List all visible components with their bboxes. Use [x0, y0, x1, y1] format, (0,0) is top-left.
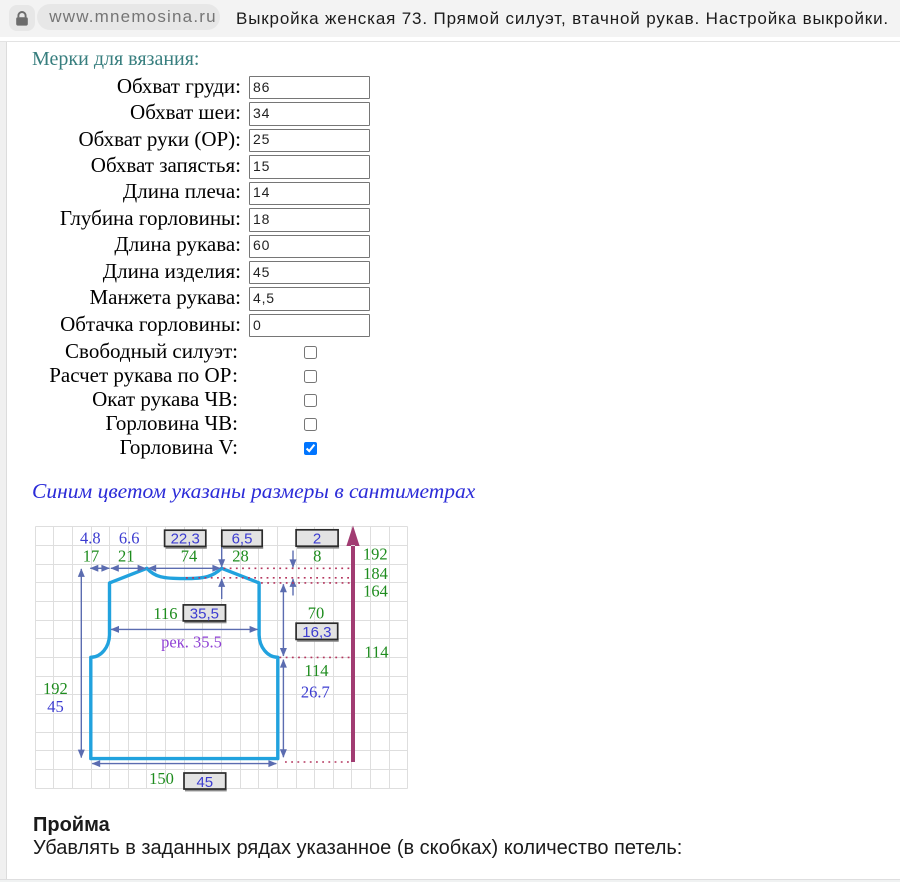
- svg-text:6.6: 6.6: [119, 529, 140, 548]
- svg-text:28: 28: [232, 547, 249, 566]
- svg-text:26.7: 26.7: [301, 683, 330, 702]
- svg-text:21: 21: [118, 547, 135, 566]
- svg-text:192: 192: [363, 545, 388, 564]
- svg-text:116: 116: [153, 604, 177, 623]
- svg-text:150: 150: [149, 769, 174, 788]
- svg-text:114: 114: [304, 661, 328, 680]
- svg-text:6,5: 6,5: [232, 531, 253, 548]
- svg-text:164: 164: [363, 581, 388, 600]
- svg-text:35,5: 35,5: [190, 606, 219, 623]
- svg-text:70: 70: [308, 604, 325, 623]
- svg-text:192: 192: [43, 679, 68, 698]
- svg-text:114: 114: [364, 643, 388, 662]
- svg-text:184: 184: [363, 564, 388, 583]
- svg-text:16,3: 16,3: [302, 624, 331, 641]
- svg-text:2: 2: [313, 531, 321, 548]
- svg-text:4.8: 4.8: [80, 529, 101, 548]
- svg-text:22,3: 22,3: [171, 531, 200, 548]
- svg-text:рек. 35.5: рек. 35.5: [161, 633, 222, 652]
- svg-text:45: 45: [196, 774, 213, 791]
- svg-text:74: 74: [181, 547, 198, 566]
- svg-text:8: 8: [313, 547, 321, 566]
- svg-text:17: 17: [83, 547, 100, 566]
- svg-text:45: 45: [47, 697, 64, 716]
